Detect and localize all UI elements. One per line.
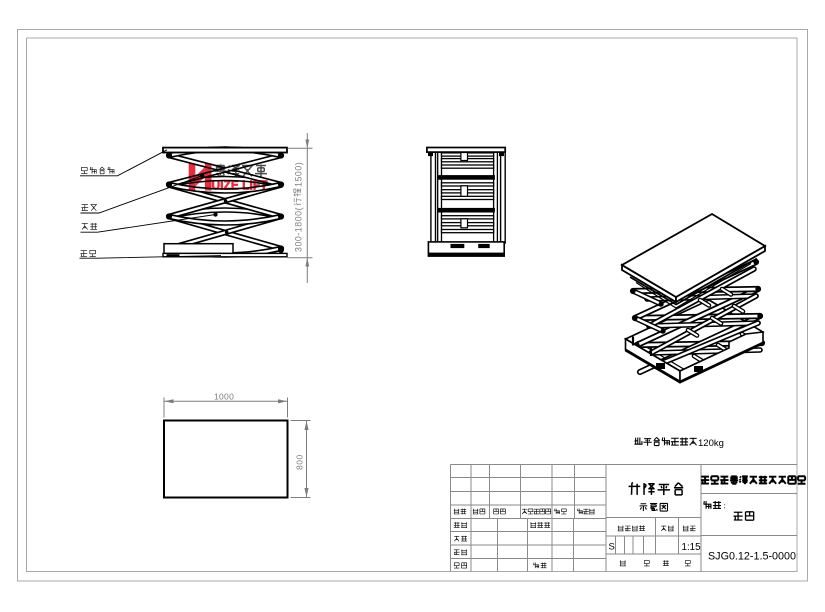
svg-text:120kg: 120kg bbox=[698, 438, 724, 449]
svg-text:S: S bbox=[609, 542, 615, 553]
svg-text:1000: 1000 bbox=[214, 392, 234, 402]
svg-text:UIZE LIFT: UIZE LIFT bbox=[212, 178, 268, 193]
svg-text:300-1800(: 300-1800( bbox=[294, 207, 304, 252]
svg-text:1500): 1500) bbox=[294, 162, 304, 187]
svg-text:800: 800 bbox=[295, 454, 305, 470]
svg-text:SJG0.12-1.5-0000: SJG0.12-1.5-0000 bbox=[708, 551, 796, 563]
svg-text:1:15: 1:15 bbox=[682, 542, 702, 553]
